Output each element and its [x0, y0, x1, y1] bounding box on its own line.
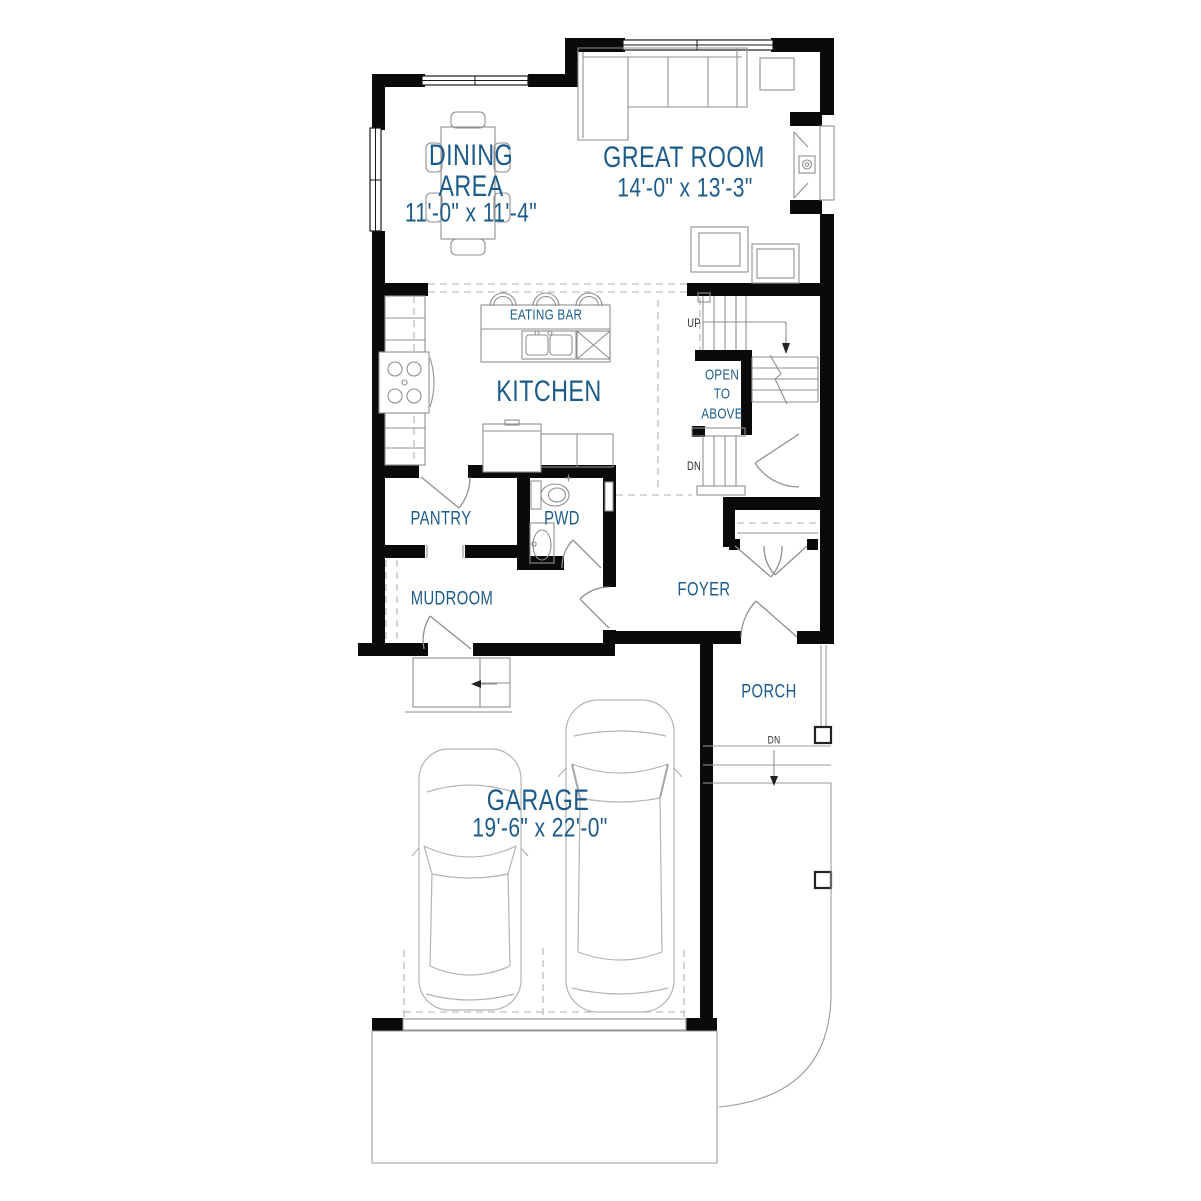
room-label-dining-line1: DINING	[429, 141, 513, 171]
sectional-sofa	[578, 48, 747, 140]
powder-room-door	[562, 540, 601, 568]
porch-column	[815, 727, 831, 743]
porch-steps	[703, 746, 831, 783]
label-eating-bar: EATING BAR	[510, 308, 582, 323]
cars	[412, 700, 682, 1012]
dining-chair	[451, 112, 485, 128]
driveway	[372, 1031, 717, 1163]
annotation-dn-porch: DN	[768, 736, 781, 747]
closet-door-left	[735, 546, 782, 577]
floor-plan: DINING AREA 11'-0" x 11'-4" GREAT ROOM 1…	[0, 0, 1201, 1201]
closet-door-right	[764, 546, 807, 575]
understair-door	[755, 434, 799, 487]
porch-railing	[821, 645, 826, 727]
room-label-garage: GARAGE	[487, 786, 589, 816]
garage-steps	[405, 658, 512, 712]
room-label-porch: PORCH	[741, 683, 796, 702]
room-label-foyer: FOYER	[677, 581, 730, 600]
side-table	[752, 244, 799, 283]
front-door	[741, 601, 797, 637]
label-open-to-above-line2: TO	[714, 387, 731, 402]
room-dims-dining: 11'-0" x 11'-4"	[405, 200, 537, 227]
room-label-pantry: PANTRY	[410, 510, 471, 529]
fireplace	[794, 126, 834, 200]
label-open-to-above-line1: OPEN	[705, 368, 739, 383]
walkway-edge	[719, 783, 831, 1107]
label-open-to-above-line3: ABOVE	[701, 407, 742, 422]
side-table	[760, 58, 794, 90]
annotation-dn-stairs: DN	[687, 460, 701, 472]
room-dims-garage: 19'-6" x 22'-0"	[472, 815, 607, 842]
bar-stools	[490, 293, 602, 306]
room-label-pwd: PWD	[544, 510, 580, 529]
plan-drawing	[0, 0, 1201, 1201]
dining-chair	[451, 239, 485, 255]
room-label-great-room: GREAT ROOM	[603, 143, 765, 173]
range	[379, 352, 434, 413]
room-dims-great-room: 14'-0" x 13'-3"	[617, 175, 752, 202]
toilet	[531, 481, 569, 509]
refrigerator	[483, 420, 541, 472]
mudroom-foyer-door	[580, 587, 609, 628]
annotation-up: UP	[687, 317, 700, 329]
wall-niche	[605, 482, 613, 511]
pantry-door	[421, 477, 470, 508]
garage-door	[403, 1019, 686, 1030]
car-right	[558, 700, 682, 1012]
room-label-mudroom: MUDROOM	[411, 590, 494, 609]
room-label-kitchen: KITCHEN	[496, 377, 601, 407]
walls	[358, 38, 834, 1031]
garage-entry-door	[423, 616, 471, 649]
porch-column	[815, 872, 831, 888]
